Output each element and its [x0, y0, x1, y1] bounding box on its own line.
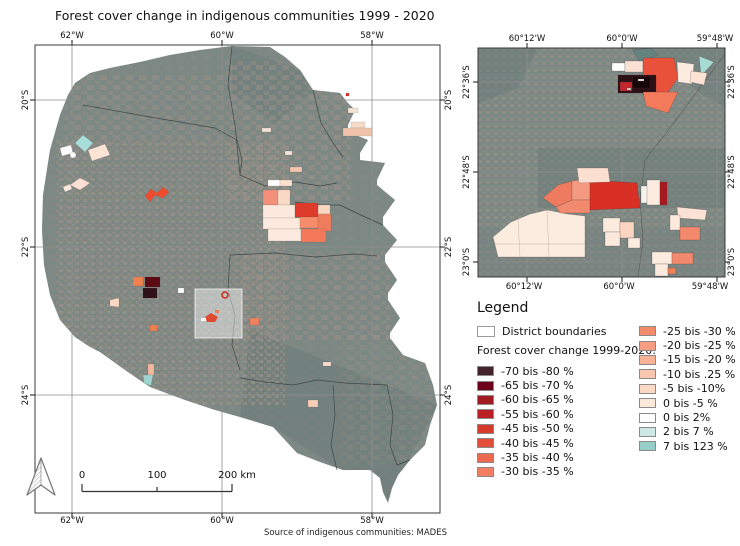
legend-label: -40 bis -45 % — [501, 437, 574, 450]
legend-item-right-2: -15 bis -20 % — [639, 353, 736, 367]
legend-column-left: -70 bis -80 %-65 bis -70 %-60 bis -65 %-… — [477, 364, 639, 479]
legend-label: 2 bis 7 % — [663, 425, 714, 438]
axis-label-left-24s: 24°S — [21, 385, 31, 405]
inset-axis-top-5948w: 59°48'W — [697, 34, 734, 44]
legend-label: -15 bis -20 % — [663, 353, 736, 366]
inset-axis-bottom-6012w: 60°12'W — [506, 282, 543, 292]
legend-swatch — [477, 409, 494, 419]
legend-swatch — [639, 413, 656, 423]
inset-axis-right-230s: 23°0'S — [727, 248, 737, 276]
axis-label-left-22s: 22°S — [21, 237, 31, 257]
legend-swatch — [477, 424, 494, 434]
legend-item-left-3: -55 bis -60 % — [477, 407, 639, 421]
legend-swatch — [639, 398, 656, 408]
map-layout-canvas: Forest cover change in indigenous commun… — [0, 0, 740, 546]
legend-item-left-5: -40 bis -45 % — [477, 436, 639, 450]
axis-label-bottom-60w: 60°W — [210, 516, 233, 526]
legend-item-left-2: -60 bis -65 % — [477, 393, 639, 407]
axis-label-right-20s: 20°S — [444, 90, 454, 110]
legend-swatch — [639, 427, 656, 437]
legend-label: -45 bis -50 % — [501, 422, 574, 435]
scalebar-label-200km: 200 km — [218, 470, 256, 481]
axis-label-top-62w: 62°W — [60, 31, 83, 41]
legend-swatch — [639, 355, 656, 365]
main-map-graphic — [30, 40, 445, 518]
axis-label-top-60w: 60°W — [210, 31, 233, 41]
legend-label: -10 bis .25 % — [663, 368, 735, 381]
satellite-texture — [35, 45, 440, 513]
legend-item-right-1: -20 bis -25 % — [639, 338, 736, 352]
inset-axis-bottom-600w: 60°0'W — [603, 282, 634, 292]
inset-axis-top-6012w: 60°12'W — [509, 34, 546, 44]
inset-axis-left-2236s: 22°36'S — [462, 65, 472, 99]
legend-item-right-4: -5 bis -10% — [639, 382, 736, 396]
legend-swatch — [477, 438, 494, 448]
legend-swatch — [639, 369, 656, 379]
legend-label: -65 bis -70 % — [501, 379, 574, 392]
inset-axis-left-230s: 23°0'S — [462, 248, 472, 276]
legend-label: -60 bis -65 % — [501, 393, 574, 406]
main-map — [30, 40, 445, 518]
legend-item-left-0: -70 bis -80 % — [477, 364, 639, 378]
legend-item-right-5: 0 bis -5 % — [639, 396, 736, 410]
main-map-content — [35, 45, 440, 513]
axis-label-right-22s: 22°S — [444, 237, 454, 257]
legend-label: 0 bis 2% — [663, 411, 710, 424]
legend: Legend District boundaries Forest cover … — [477, 300, 737, 479]
legend-item-right-8: 7 bis 123 % — [639, 439, 736, 453]
legend-swatch — [477, 395, 494, 405]
axis-label-bottom-58w: 58°W — [360, 516, 383, 526]
legend-label: -70 bis -80 % — [501, 365, 574, 378]
axis-label-top-58w: 58°W — [360, 31, 383, 41]
inset-axis-bottom-5948w: 59°48'W — [692, 282, 729, 292]
north-arrow-icon — [25, 457, 57, 497]
legend-item-left-7: -30 bis -35 % — [477, 465, 639, 479]
legend-swatch — [477, 453, 494, 463]
inset-axis-right-2248s: 22°48'S — [727, 155, 737, 189]
inset-axis-right-2236s: 22°36'S — [727, 65, 737, 99]
legend-label: -55 bis -60 % — [501, 408, 574, 421]
scalebar-label-100: 100 — [147, 470, 166, 481]
legend-heading: Legend — [477, 300, 737, 316]
legend-label: -5 bis -10% — [663, 382, 725, 395]
inset-axis-left-2248s: 22°48'S — [462, 155, 472, 189]
legend-item-left-4: -45 bis -50 % — [477, 422, 639, 436]
legend-item-right-0: -25 bis -30 % — [639, 324, 736, 338]
legend-label: 0 bis -5 % — [663, 397, 718, 410]
scalebar-label-0: 0 — [79, 470, 85, 481]
axis-label-bottom-62w: 62°W — [60, 516, 83, 526]
legend-item-right-6: 0 bis 2% — [639, 410, 736, 424]
legend-item-left-1: -65 bis -70 % — [477, 378, 639, 392]
district-boundaries-swatch — [477, 326, 495, 337]
legend-swatch — [639, 384, 656, 394]
scalebar-graphic — [75, 482, 245, 496]
legend-swatch — [477, 467, 494, 477]
legend-label: 7 bis 123 % — [663, 440, 728, 453]
legend-swatch — [639, 326, 656, 336]
legend-swatch — [639, 341, 656, 351]
legend-item-right-3: -10 bis .25 % — [639, 367, 736, 381]
legend-swatch — [639, 441, 656, 451]
legend-swatch — [477, 366, 494, 376]
legend-item-left-6: -35 bis -40 % — [477, 450, 639, 464]
north-arrow — [25, 457, 57, 497]
legend-item-right-7: 2 bis 7 % — [639, 425, 736, 439]
page-title: Forest cover change in indigenous commun… — [55, 8, 435, 23]
district-boundaries-label: District boundaries — [502, 325, 606, 338]
legend-label: -25 bis -30 % — [663, 325, 736, 338]
inset-map — [473, 43, 730, 282]
inset-map-content — [478, 48, 728, 277]
legend-label: -20 bis -25 % — [663, 339, 736, 352]
legend-column-right: -25 bis -30 %-20 bis -25 %-15 bis -20 %-… — [639, 324, 736, 454]
source-note: Source of indigenous communities: MADES — [264, 528, 447, 538]
legend-label: -35 bis -40 % — [501, 451, 574, 464]
axis-label-left-20s: 20°S — [21, 90, 31, 110]
legend-label: -30 bis -35 % — [501, 465, 574, 478]
axis-label-right-24s: 24°S — [444, 385, 454, 405]
inset-axis-top-600w: 60°0'W — [606, 34, 637, 44]
legend-swatch — [477, 381, 494, 391]
inset-extent-box — [195, 289, 242, 338]
inset-map-graphic — [473, 43, 730, 282]
